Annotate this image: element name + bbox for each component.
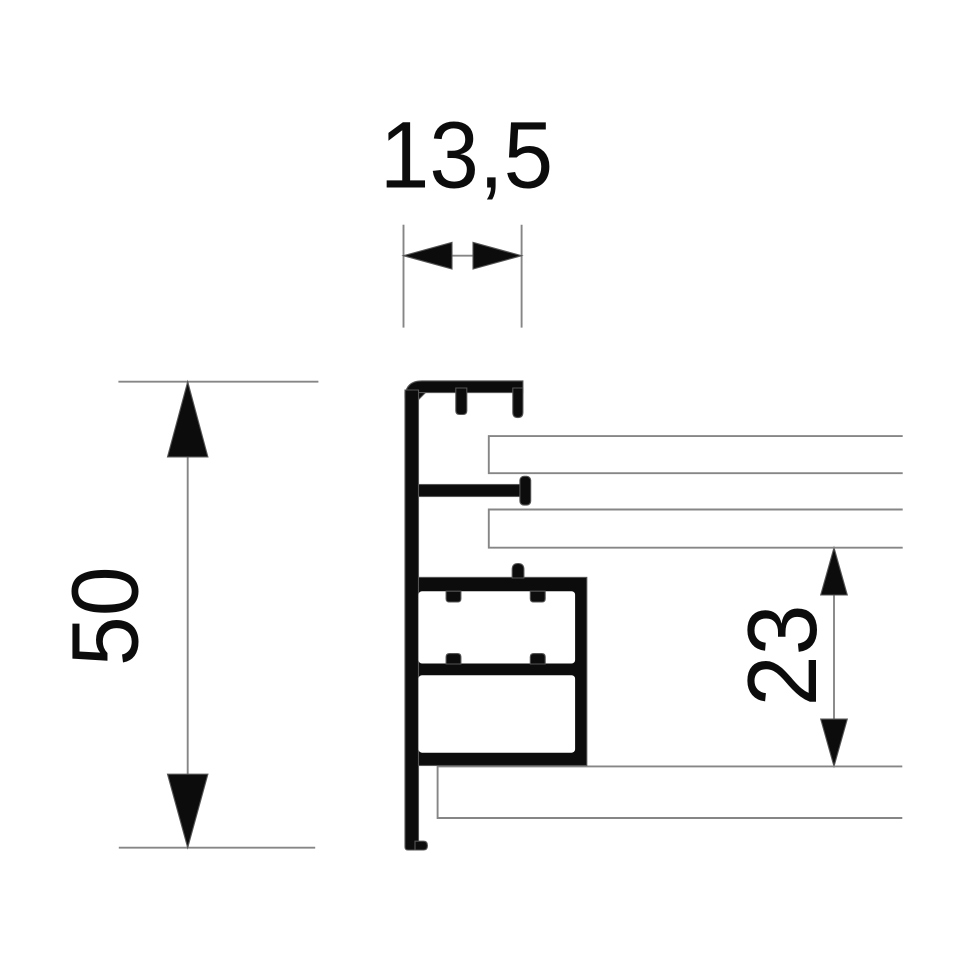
svg-text:50: 50 [51, 566, 158, 666]
svg-text:23: 23 [728, 604, 837, 706]
svg-text:13,5: 13,5 [380, 102, 553, 208]
